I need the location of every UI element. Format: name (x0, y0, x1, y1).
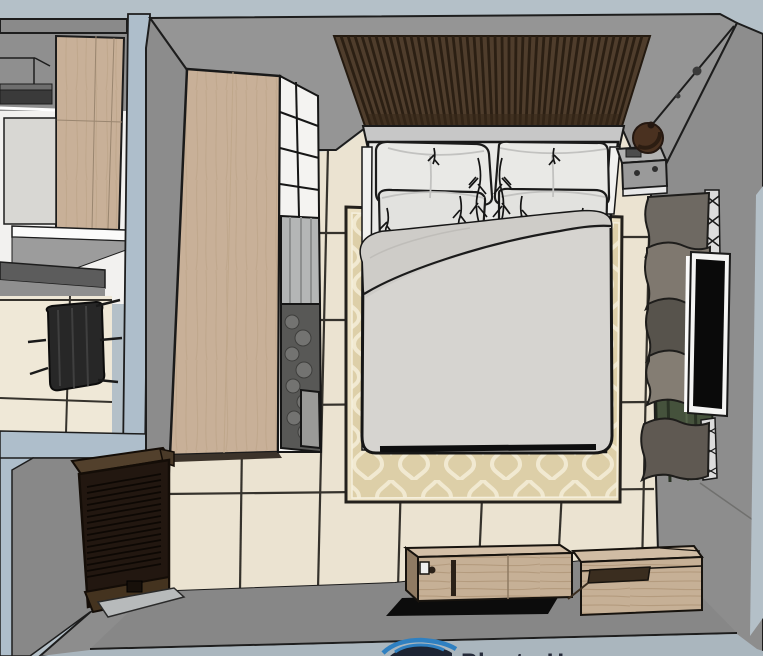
svg-text:Planta Humana: Planta Humana (461, 649, 647, 656)
